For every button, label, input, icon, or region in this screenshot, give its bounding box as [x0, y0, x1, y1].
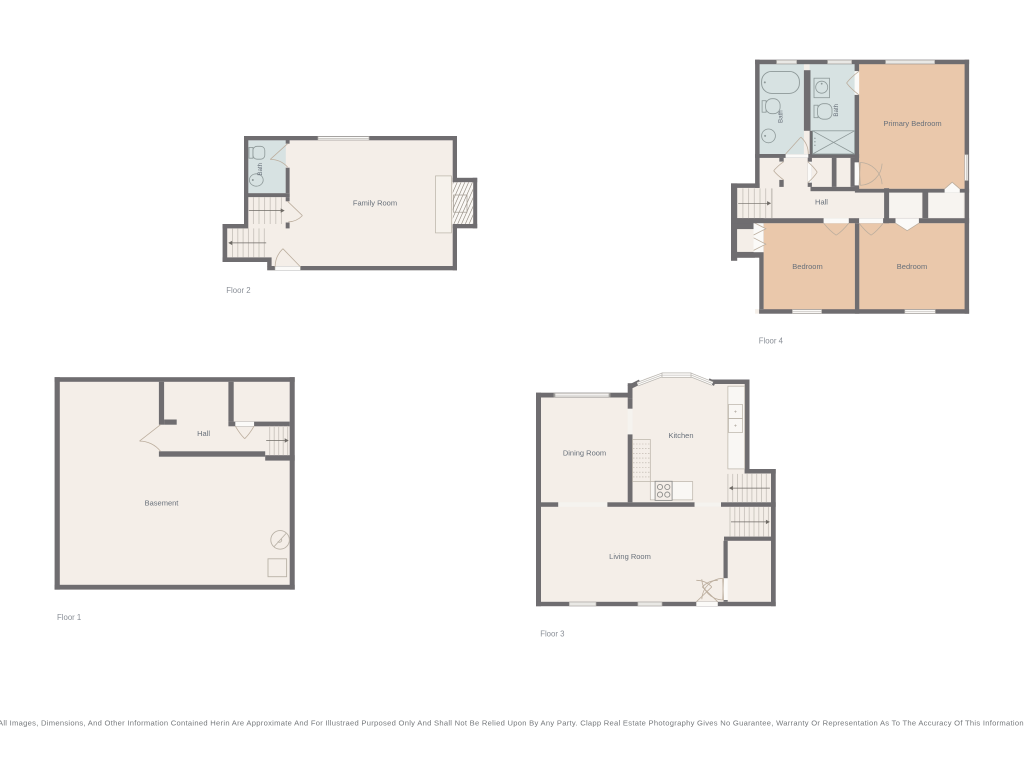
- svg-text:All Images, Dimensions, And Ot: All Images, Dimensions, And Other Inform…: [0, 719, 1024, 728]
- svg-text:+: +: [734, 424, 737, 430]
- svg-text:Family Room: Family Room: [353, 198, 397, 207]
- svg-text:Hall: Hall: [197, 429, 210, 438]
- svg-text:Floor 1: Floor 1: [57, 613, 81, 622]
- svg-text:+: +: [734, 410, 737, 416]
- svg-text:Bedroom: Bedroom: [897, 262, 927, 271]
- svg-text:Dining Room: Dining Room: [563, 449, 606, 458]
- svg-text:Basement: Basement: [145, 499, 180, 508]
- svg-text:Floor 3: Floor 3: [540, 630, 564, 639]
- svg-text:Kitchen: Kitchen: [668, 431, 693, 440]
- svg-text:Hall: Hall: [815, 198, 828, 207]
- svg-text:Bath: Bath: [257, 162, 264, 175]
- svg-text:Floor 4: Floor 4: [759, 337, 784, 346]
- svg-text:Primary Bedroom: Primary Bedroom: [883, 119, 941, 128]
- svg-text:Floor 2: Floor 2: [226, 286, 250, 295]
- svg-text:Bath: Bath: [778, 110, 785, 123]
- svg-text:Bath: Bath: [833, 103, 840, 116]
- svg-text:Living Room: Living Room: [609, 552, 651, 561]
- svg-text:Bedroom: Bedroom: [792, 262, 822, 271]
